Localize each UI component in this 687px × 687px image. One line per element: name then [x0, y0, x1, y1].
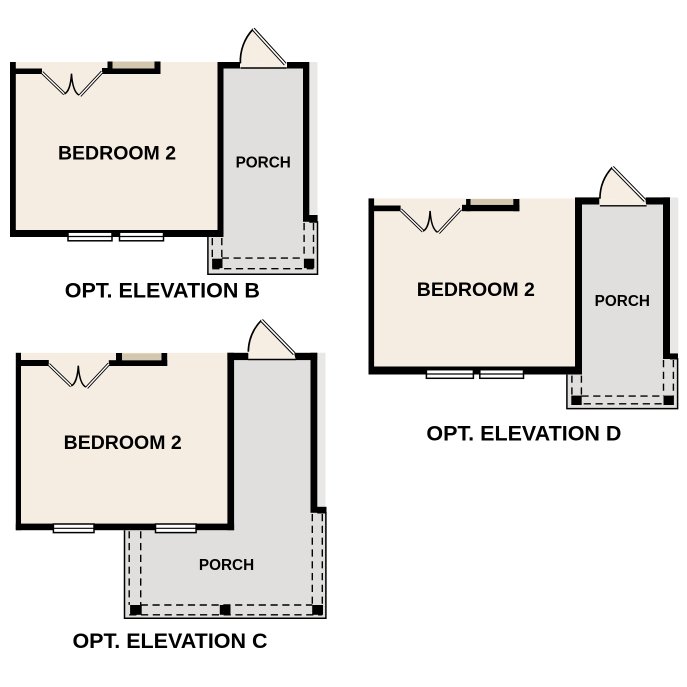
svg-text:BEDROOM 2: BEDROOM 2 — [58, 143, 176, 165]
svg-text:OPT. ELEVATION C: OPT. ELEVATION C — [72, 629, 267, 653]
svg-text:OPT. ELEVATION B: OPT. ELEVATION B — [65, 279, 260, 303]
svg-text:OPT. ELEVATION D: OPT. ELEVATION D — [426, 422, 621, 446]
svg-text:BEDROOM 2: BEDROOM 2 — [417, 279, 535, 301]
svg-text:BEDROOM 2: BEDROOM 2 — [64, 432, 182, 454]
svg-text:PORCH: PORCH — [199, 557, 254, 574]
svg-text:PORCH: PORCH — [595, 293, 650, 310]
svg-text:PORCH: PORCH — [236, 154, 291, 171]
